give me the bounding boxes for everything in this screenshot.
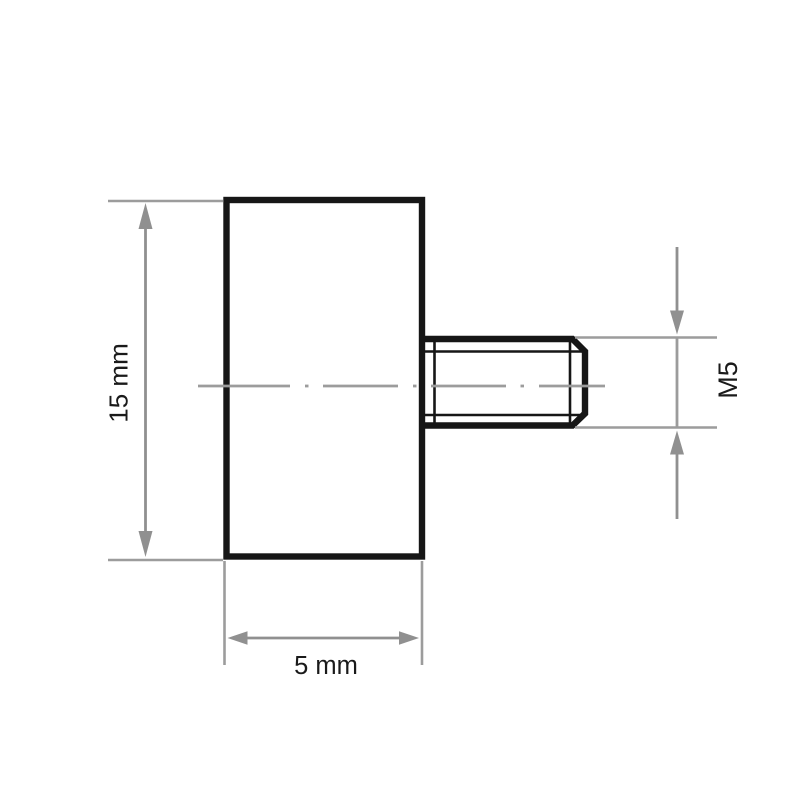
svg-text:15 mm: 15 mm — [104, 343, 134, 422]
svg-text:M5: M5 — [713, 361, 743, 399]
svg-text:5 mm: 5 mm — [294, 652, 358, 680]
